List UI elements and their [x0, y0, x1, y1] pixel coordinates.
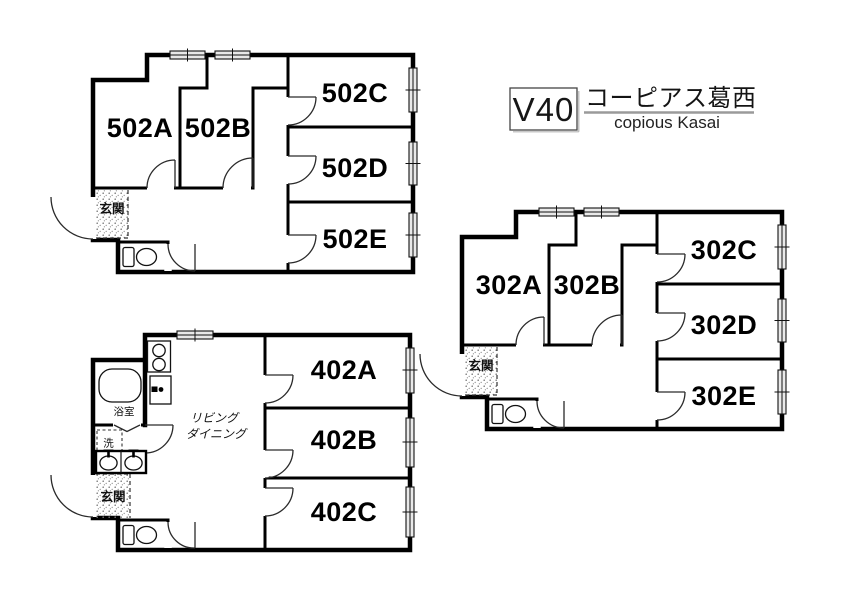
- room-label-502D: 502D: [322, 153, 389, 183]
- floor-plan-302: 302A 302B 302C 302D 302E 玄関: [420, 206, 790, 430]
- bath-label: 浴室: [114, 405, 135, 418]
- room-label-302D: 302D: [691, 310, 758, 340]
- room-label-302C: 302C: [691, 235, 758, 265]
- room-label-502A: 502A: [107, 113, 174, 143]
- room-label-302A: 302A: [476, 270, 543, 300]
- floor-plan-502: 502A 502B 502C 502D 502E 玄関: [51, 49, 421, 273]
- title-block: V40 コーピアス葛西 copious Kasai: [510, 85, 757, 132]
- bathtub-icon: [99, 369, 141, 402]
- living-label-line1: リビング: [190, 411, 240, 425]
- wash-basins-icon: [96, 450, 146, 474]
- living-label-line2: ダイニング: [186, 427, 248, 441]
- floor-plan-canvas: 502A 502B 502C 502D 502E 玄関 302A 302B 30…: [0, 0, 842, 595]
- room-label-302E: 302E: [691, 381, 756, 411]
- kitchen-sink-icon: [150, 376, 171, 404]
- floor-plan-402: 402A 402B 402C リビング ダイニング 浴室 洗 玄関: [51, 329, 418, 551]
- building-name-en: copious Kasai: [614, 113, 720, 132]
- room-label-502B: 502B: [185, 113, 252, 143]
- entrance-label-402: 玄関: [100, 489, 125, 504]
- room-label-402C: 402C: [311, 497, 378, 527]
- building-name-ja: コーピアス葛西: [585, 85, 757, 112]
- entrance-label-302: 玄関: [468, 358, 493, 373]
- room-label-502E: 502E: [322, 224, 387, 254]
- toilet-icon-402: [123, 526, 157, 545]
- room-label-402A: 402A: [311, 355, 378, 385]
- entrance-label-502: 玄関: [99, 201, 124, 216]
- room-label-402B: 402B: [311, 425, 378, 455]
- floor-plan-sheet: 502A 502B 502C 502D 502E 玄関 302A 302B 30…: [0, 0, 842, 595]
- laundry-label: 洗: [103, 438, 114, 450]
- building-code: V40: [513, 91, 575, 128]
- room-label-502C: 502C: [322, 78, 389, 108]
- door-swing-arcs-402: [51, 375, 293, 548]
- stove-icon: [148, 341, 171, 372]
- room-label-302B: 302B: [554, 270, 621, 300]
